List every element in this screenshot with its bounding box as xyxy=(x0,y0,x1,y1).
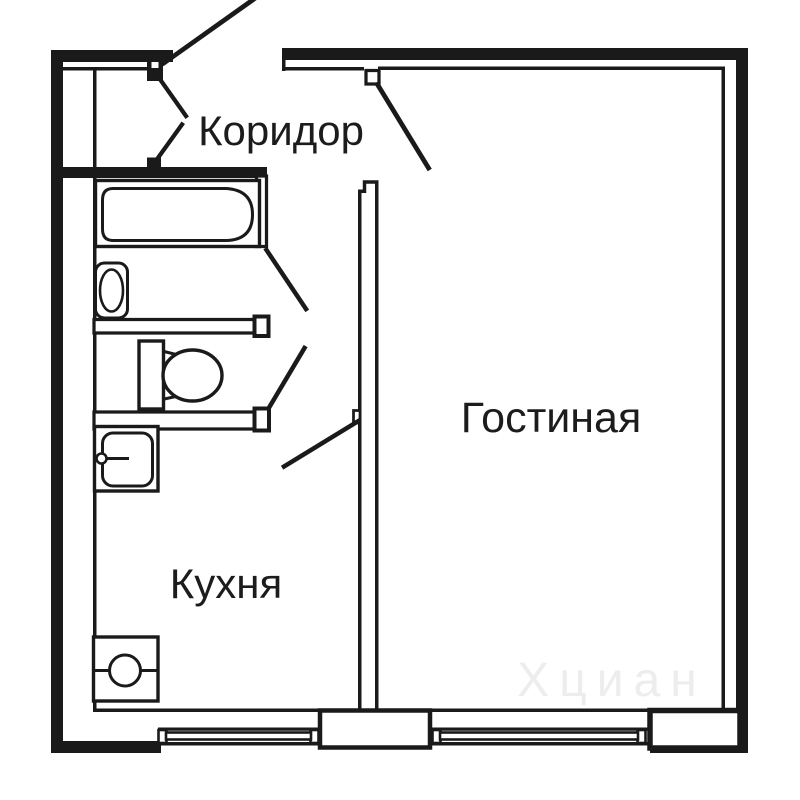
living-door-leaf xyxy=(378,85,429,169)
living-room-label: Гостиная xyxy=(461,394,641,442)
watermark-text: Хциан xyxy=(517,654,707,707)
floor-plan-page: Хциан xyxy=(0,0,800,800)
window-glazing-bar xyxy=(166,733,311,740)
kitchen-fixtures xyxy=(94,427,159,702)
washbasin-bowl-icon xyxy=(100,270,123,312)
inner-line-top-corridor xyxy=(282,67,364,71)
kitchen-label: Кухня xyxy=(170,560,282,607)
floor-plan: Хциан xyxy=(0,0,800,800)
wall-central xyxy=(360,182,377,711)
inner-line-left xyxy=(93,67,97,712)
inner-line-top-living xyxy=(378,67,722,71)
wall-left xyxy=(51,50,63,753)
wall-bath-toilet-divider xyxy=(94,320,256,334)
inner-line-bottom-living xyxy=(430,709,650,713)
wall-bottom-left xyxy=(51,741,161,753)
kitchen-door-leaf xyxy=(284,421,359,467)
kitchen-window xyxy=(158,728,320,746)
living-window xyxy=(428,728,652,746)
toilet-tank-icon xyxy=(139,341,164,409)
wall-bathroom-top xyxy=(62,167,267,178)
corridor-label: Коридор xyxy=(198,107,364,154)
window-pier xyxy=(320,711,430,748)
wall-right xyxy=(736,48,748,753)
inner-line-cap xyxy=(282,60,286,71)
closet-door-leaf-lower xyxy=(158,125,183,159)
bathroom-fixtures xyxy=(96,181,260,319)
wall-top-right xyxy=(282,48,748,60)
window-sill-line xyxy=(428,742,652,746)
toilet-door-leaf xyxy=(270,348,305,406)
window-glazing-bar xyxy=(440,733,638,740)
toilet-fixtures xyxy=(139,341,222,409)
bathtub-basin-icon xyxy=(103,189,253,241)
toilet-bowl-icon xyxy=(163,350,222,401)
entrance-door-leaf xyxy=(164,0,254,63)
stove-burner-icon xyxy=(110,655,141,686)
bathroom-door-leaf xyxy=(267,250,307,309)
kitchen-faucet-knob-icon xyxy=(97,454,107,464)
living-door-jamb xyxy=(366,71,379,85)
corner-pier xyxy=(650,711,740,749)
wall-toilet-kitchen-divider-cap xyxy=(255,409,270,431)
window-outer-line xyxy=(158,728,320,731)
closet-door-leaf-upper xyxy=(161,80,187,116)
wall-top-left xyxy=(51,50,173,62)
inner-line-bottom-kitchen xyxy=(93,709,320,713)
inner-line-top-left xyxy=(63,67,148,71)
wall-bath-toilet-divider-cap xyxy=(255,317,269,337)
inner-line-right xyxy=(722,67,726,712)
window-sill-line xyxy=(158,742,320,746)
window-outer-line xyxy=(428,728,652,731)
